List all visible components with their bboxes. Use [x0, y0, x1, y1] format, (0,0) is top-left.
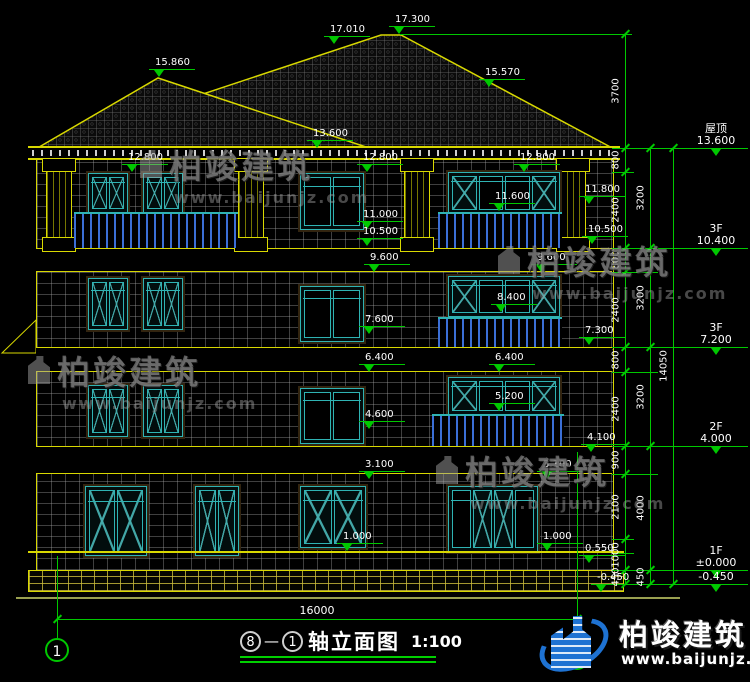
level-triangle-icon [711, 149, 721, 161]
marker-triangle-icon [494, 404, 504, 416]
dim-value: 2400 [611, 297, 622, 322]
elevation-marker: 13.600 [307, 129, 353, 153]
elevation-value: 9.600 [370, 253, 410, 263]
marker-triangle-icon [496, 305, 506, 317]
floor-level-flag: 3F7.200 [684, 322, 748, 360]
elevation-marker: 3.100 [537, 460, 583, 484]
elevation-value: 6.400 [495, 353, 535, 363]
pane x [218, 490, 235, 552]
dim-chain-line [673, 148, 674, 584]
balcony-door [300, 286, 364, 342]
pane [515, 490, 534, 548]
pane x [164, 282, 179, 326]
elevation-marker: 7.300 [579, 326, 625, 350]
pane x [92, 282, 107, 326]
pane x [532, 176, 557, 210]
logo-name: 柏竣建筑 [619, 612, 747, 654]
floor-elevation: 13.600 [684, 135, 748, 147]
elevation-marker: 12.800 [514, 153, 560, 177]
floor-level-flag: 屋顶13.600 [684, 123, 748, 161]
marker-triangle-icon [586, 445, 596, 457]
pane x [92, 177, 107, 209]
balcony-railing [74, 212, 238, 248]
level-triangle-icon [711, 447, 721, 459]
elevation-marker: 3.100 [359, 460, 405, 484]
elevation-marker: 15.860 [149, 58, 195, 82]
level-triangle-icon [711, 249, 721, 261]
pane x [147, 177, 162, 209]
title-axis-bubble-8: 8 [240, 631, 261, 652]
pane x [147, 389, 162, 433]
cad-elevation-canvas: 1 8 16000 8 — 1 轴立面图 1:100 柏竣建筑 www.baij… [0, 0, 750, 682]
floor-elevation: 10.400 [684, 235, 748, 247]
marker-triangle-icon [154, 70, 164, 82]
plinth-base [28, 570, 624, 592]
elevation-marker: 5.200 [489, 392, 535, 416]
pane [333, 177, 360, 226]
elevation-marker: 9.600 [364, 253, 410, 277]
marker-triangle-icon [329, 37, 339, 49]
elevation-value: 7.300 [585, 326, 625, 336]
pane x [147, 282, 162, 326]
marker-triangle-icon [584, 197, 594, 209]
elevation-value: 12.800 [363, 153, 403, 163]
level-ext-line [612, 474, 658, 475]
elevation-value: 12.800 [520, 153, 560, 163]
title-dash: — [264, 632, 279, 650]
pane [333, 392, 360, 440]
marker-triangle-icon [519, 165, 529, 177]
elevation-value: 7.600 [365, 315, 405, 325]
marker-triangle-icon [587, 237, 597, 249]
floor-elevation: -0.450 [684, 571, 748, 583]
floor-level-flag: -0.450 [684, 571, 748, 597]
title-text: 轴立面图 [308, 626, 400, 656]
elevation-marker: 8.400 [491, 293, 537, 317]
elevation-marker: 17.010 [324, 25, 370, 49]
elevation-value: 9.600 [537, 253, 577, 263]
marker-triangle-icon [542, 544, 552, 556]
dim-value: 450 [636, 567, 647, 586]
dim-chain-line [625, 34, 626, 584]
pane x [109, 282, 124, 326]
elevation-value: 11.000 [363, 210, 403, 220]
level-ext-line [612, 372, 658, 373]
elevation-marker: 7.600 [359, 315, 405, 339]
elevation-value: 10.500 [363, 227, 403, 237]
floor-slab-4f [36, 248, 612, 272]
pane x [92, 389, 107, 433]
dim-value: 800 [611, 150, 622, 169]
pane x [89, 490, 115, 552]
title-scale: 1:100 [411, 632, 462, 651]
marker-triangle-icon [369, 265, 379, 277]
elevation-value: 6.400 [365, 353, 405, 363]
pane x [452, 381, 477, 411]
marker-triangle-icon [596, 585, 606, 597]
dim-value: 3200 [636, 185, 647, 210]
marker-triangle-icon [364, 327, 374, 339]
pane x [164, 389, 179, 433]
pane x [532, 381, 557, 411]
marker-triangle-icon [362, 239, 372, 251]
column [404, 160, 430, 250]
dim-value: 2100 [611, 494, 622, 519]
title-underline [240, 656, 436, 658]
column [238, 160, 264, 250]
window [88, 173, 128, 213]
dim-value: 3700 [611, 78, 622, 103]
marker-triangle-icon [542, 472, 552, 484]
title-underline [240, 661, 436, 663]
elevation-marker: 12.800 [122, 153, 168, 177]
window [88, 278, 128, 330]
marker-triangle-icon [494, 204, 504, 216]
pane x [109, 177, 124, 209]
elevation-marker: 15.570 [479, 68, 525, 92]
dim-value: 1000 [611, 542, 622, 567]
dim-value: 3200 [636, 384, 647, 409]
overall-dim-value: 16000 [277, 604, 357, 617]
marker-triangle-icon [364, 422, 374, 434]
elevation-value: 15.570 [485, 68, 525, 78]
elevation-value: 3.100 [543, 460, 583, 470]
pane x [199, 490, 216, 552]
floor-level-flag: 3F10.400 [684, 223, 748, 261]
elevation-marker: 17.300 [389, 15, 435, 39]
balcony-railing [432, 414, 564, 446]
pane x [452, 280, 477, 313]
marker-triangle-icon [584, 556, 594, 568]
pane [304, 392, 331, 440]
balcony-railing [438, 212, 562, 248]
window [143, 278, 183, 330]
dim-value: 4000 [636, 495, 647, 520]
elevation-marker: 10.500 [357, 227, 403, 251]
axis-bubble-left: 1 [45, 638, 69, 662]
logo-url: www.baijunjz.com [621, 650, 750, 668]
window [448, 486, 538, 552]
dim-value: 3200 [636, 285, 647, 310]
dim-value: 2400 [611, 396, 622, 421]
elevation-value: 15.860 [155, 58, 195, 68]
elevation-value: 11.600 [495, 192, 535, 202]
level-triangle-icon [711, 585, 721, 597]
elevation-value: 4.600 [365, 410, 405, 420]
pane x [164, 177, 179, 209]
window [143, 385, 183, 437]
elevation-marker: 11.600 [489, 192, 535, 216]
marker-triangle-icon [364, 365, 374, 377]
dim-value: 800 [611, 250, 622, 269]
marker-triangle-icon [312, 141, 322, 153]
floor-elevation: 7.200 [684, 334, 748, 346]
level-ext-line [612, 272, 658, 273]
elevation-marker: 10.500 [582, 225, 628, 249]
marker-triangle-icon [364, 472, 374, 484]
elevation-marker: 6.400 [359, 353, 405, 377]
elevation-value: 12.800 [128, 153, 168, 163]
drawing-title: 8 — 1 轴立面图 1:100 [240, 626, 462, 656]
pane x [109, 389, 124, 433]
window [143, 173, 183, 213]
dim-value: 800 [611, 350, 622, 369]
elevation-marker: 1.000 [337, 532, 383, 556]
balcony-door [300, 173, 364, 230]
elevation-value: 13.600 [313, 129, 353, 139]
left-wing-eave [2, 320, 36, 353]
marker-triangle-icon [362, 165, 372, 177]
pane [304, 177, 331, 226]
elevation-value: 1.000 [343, 532, 383, 542]
marker-triangle-icon [536, 265, 546, 277]
floor-level-flag: 2F4.000 [684, 421, 748, 459]
elevation-marker: 1.000 [537, 532, 583, 556]
elevation-value: 17.300 [395, 15, 435, 25]
elevation-value: 4.100 [587, 433, 627, 443]
floor-slab-2f [36, 446, 612, 474]
pane x [452, 176, 477, 210]
pane [452, 490, 471, 548]
pane x [304, 490, 332, 544]
pane [304, 290, 331, 338]
elevation-value: 8.400 [497, 293, 537, 303]
dim-value: 14050 [659, 350, 670, 382]
title-axis-bubble-1: 1 [282, 631, 303, 652]
window [85, 486, 147, 556]
floor-elevation: 4.000 [684, 433, 748, 445]
floor-elevation: ±0.000 [684, 557, 748, 569]
elevation-value: 17.010 [330, 25, 370, 35]
elevation-value: 10.500 [588, 225, 628, 235]
ground-line [16, 597, 680, 599]
dim-value: 450 [611, 567, 622, 586]
elevation-marker: 12.800 [357, 153, 403, 177]
pane x [473, 490, 492, 548]
elevation-marker: 4.600 [359, 410, 405, 434]
elevation-value: 11.800 [585, 185, 625, 195]
elevation-value: 1.000 [543, 532, 583, 542]
dim-value: 2400 [611, 197, 622, 222]
window [88, 385, 128, 437]
pane [333, 290, 360, 338]
elevation-marker: 9.600 [531, 253, 577, 277]
marker-triangle-icon [127, 165, 137, 177]
marker-triangle-icon [584, 338, 594, 350]
dim-value: 900 [611, 450, 622, 469]
marker-triangle-icon [494, 365, 504, 377]
balcony-railing [438, 317, 562, 347]
marker-triangle-icon [342, 544, 352, 556]
level-triangle-icon [711, 348, 721, 360]
dim-chain-line [650, 148, 651, 584]
balcony-door [300, 388, 364, 444]
column [46, 160, 72, 250]
window [195, 486, 239, 556]
elevation-value: 3.100 [365, 460, 405, 470]
axis-line-1 [57, 556, 58, 638]
elevation-marker: 6.400 [489, 353, 535, 377]
pane x [494, 490, 513, 548]
marker-triangle-icon [394, 27, 404, 39]
marker-triangle-icon [484, 80, 494, 92]
pane x [117, 490, 143, 552]
elevation-value: 5.200 [495, 392, 535, 402]
brand-logo: 柏竣建筑 www.baijunjz.com [533, 610, 750, 682]
plinth-ledge [28, 551, 624, 553]
